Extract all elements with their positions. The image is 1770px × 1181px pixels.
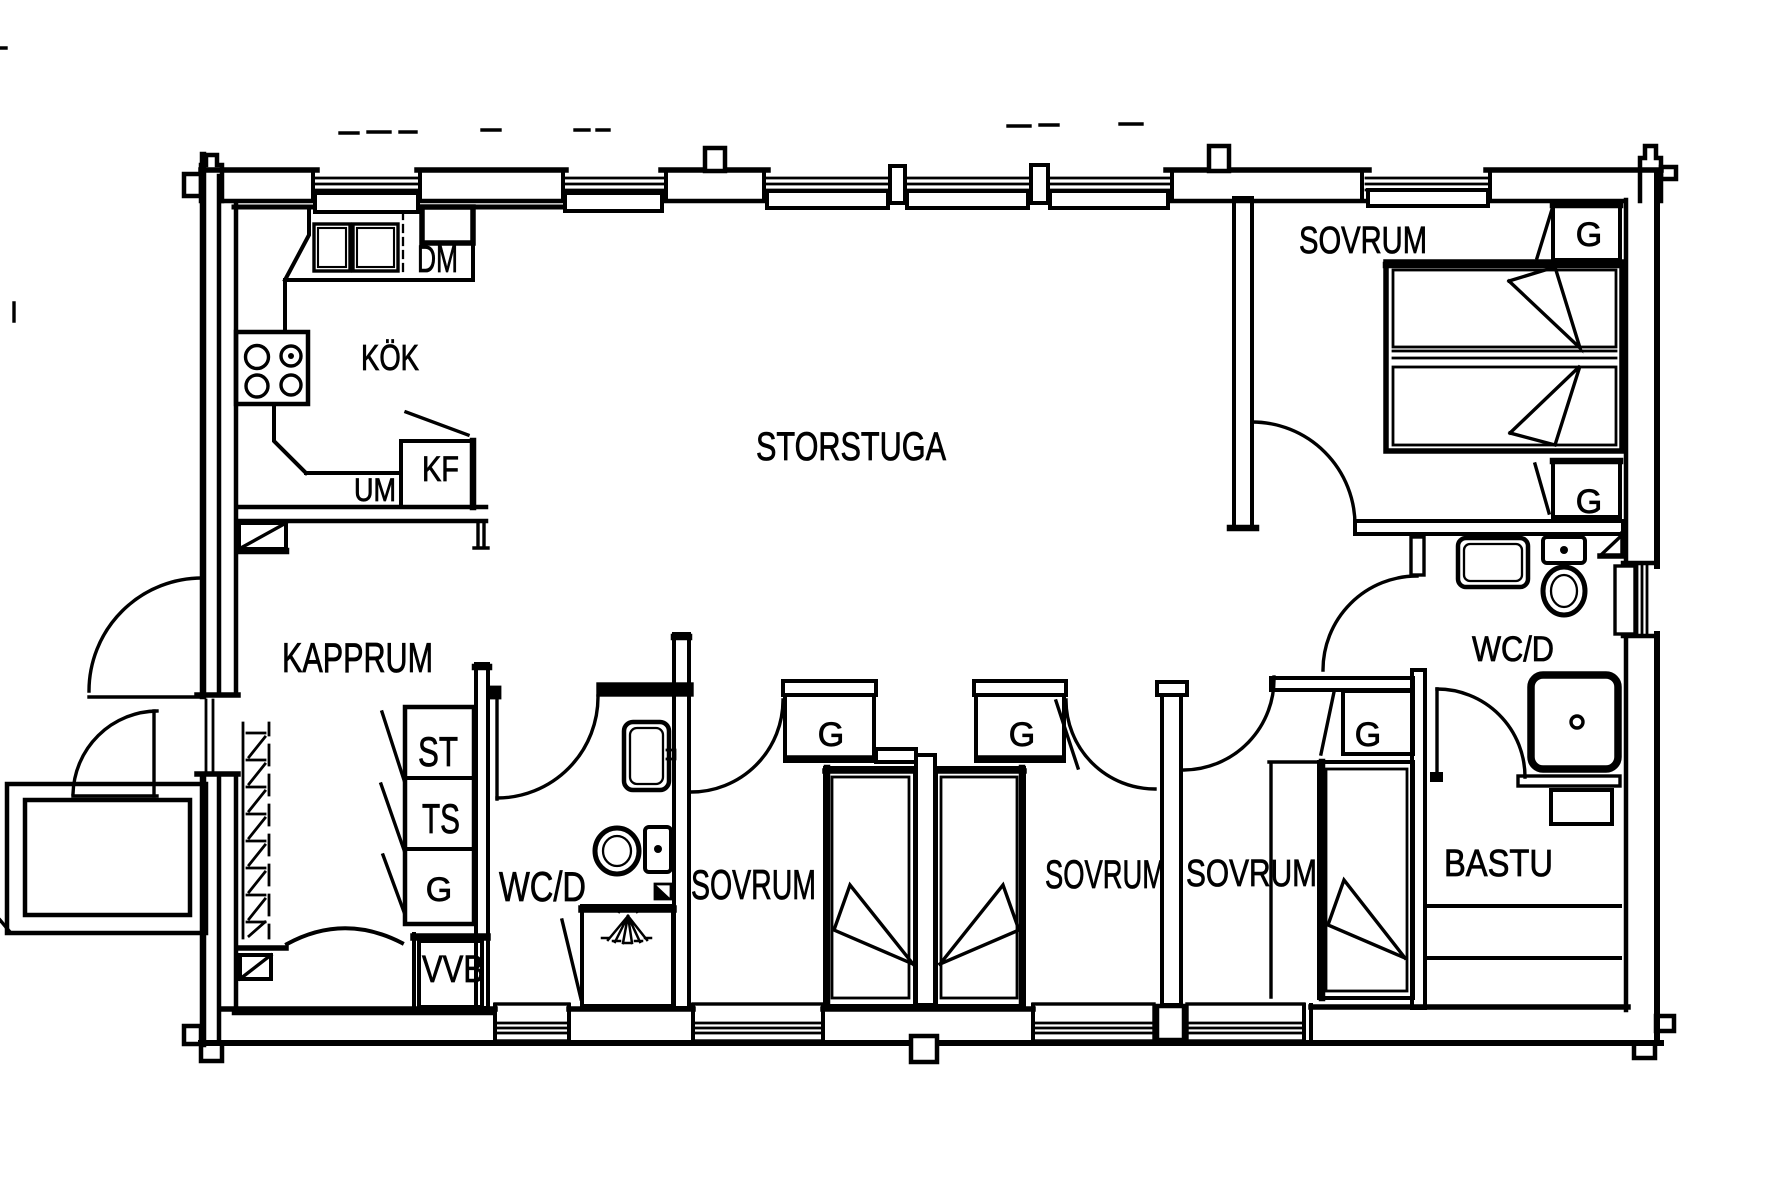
- svg-text:STORSTUGA: STORSTUGA: [756, 425, 946, 469]
- svg-text:BASTU: BASTU: [1444, 843, 1553, 885]
- svg-text:G: G: [1009, 716, 1035, 754]
- svg-text:SOVRUM: SOVRUM: [691, 861, 816, 908]
- svg-text:WC/D: WC/D: [499, 863, 586, 910]
- svg-text:UM: UM: [354, 472, 396, 508]
- svg-text:SOVRUM: SOVRUM: [1299, 220, 1427, 262]
- svg-text:KAPPRUM: KAPPRUM: [282, 634, 433, 681]
- svg-text:VVB: VVB: [422, 949, 484, 991]
- svg-text:G: G: [1576, 483, 1602, 521]
- svg-text:SOVRUM: SOVRUM: [1045, 853, 1165, 897]
- svg-text:G: G: [818, 716, 844, 754]
- svg-text:G: G: [1355, 716, 1381, 754]
- svg-text:KÖK: KÖK: [361, 337, 419, 378]
- svg-text:WC/D: WC/D: [1472, 630, 1554, 669]
- svg-text:G: G: [426, 871, 452, 909]
- svg-text:SOVRUM: SOVRUM: [1186, 853, 1317, 895]
- svg-text:G: G: [1576, 216, 1602, 254]
- svg-text:KF: KF: [422, 450, 459, 489]
- svg-text:TS: TS: [422, 795, 460, 842]
- svg-text:ST: ST: [418, 728, 458, 775]
- svg-text:DM: DM: [417, 239, 458, 281]
